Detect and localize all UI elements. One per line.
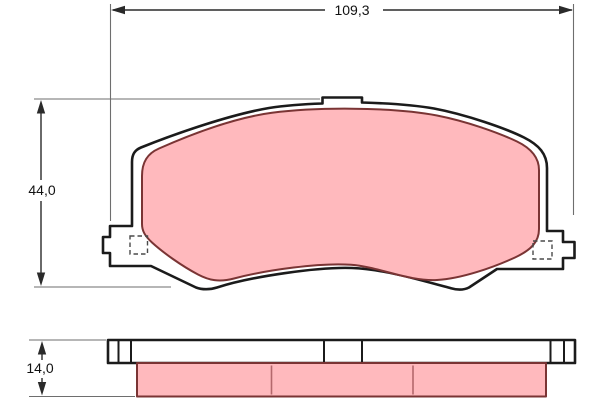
friction-material-front bbox=[142, 109, 539, 281]
thickness-dim-label: 14,0 bbox=[26, 360, 53, 376]
width-arrow-left bbox=[111, 6, 125, 14]
friction-material-side bbox=[137, 363, 546, 397]
thickness-arrow-up bbox=[38, 341, 46, 355]
front-view bbox=[103, 98, 575, 290]
height-dim-label: 44,0 bbox=[28, 182, 55, 198]
height-arrow-down bbox=[37, 273, 45, 287]
height-arrow-up bbox=[37, 100, 45, 114]
width-arrow-right bbox=[559, 6, 573, 14]
thickness-arrow-down bbox=[38, 382, 46, 396]
width-dim-label: 109,3 bbox=[334, 2, 369, 18]
drawing-svg: 109,3 44,0 14,0 bbox=[0, 0, 600, 400]
backing-plate-side bbox=[108, 340, 575, 363]
side-view bbox=[108, 340, 575, 397]
brake-pad-technical-drawing: 109,3 44,0 14,0 bbox=[0, 0, 600, 400]
